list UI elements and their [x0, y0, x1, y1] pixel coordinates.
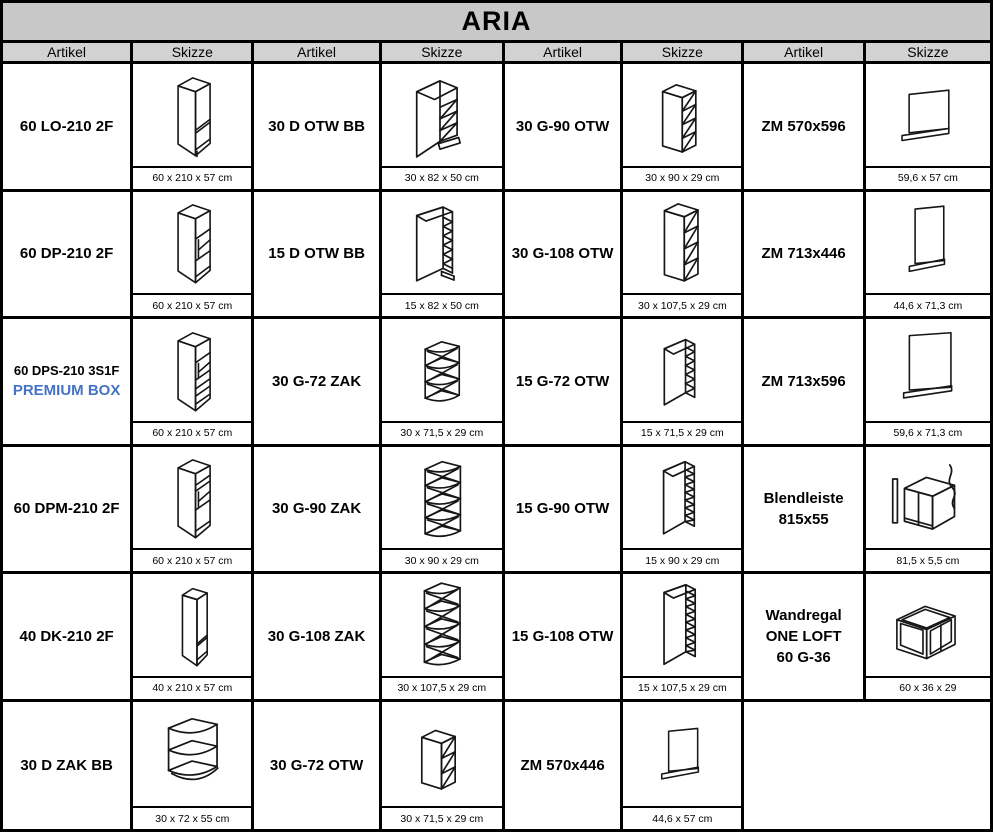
artikel-cell: 60 DP-210 2F — [3, 192, 133, 320]
dimensions-label: 30 x 90 x 29 cm — [382, 548, 502, 571]
artikel-cell: 30 G-108 ZAK — [254, 574, 381, 702]
skizze-cell: 15 x 90 x 29 cm — [623, 447, 744, 575]
column-header-artikel: Artikel — [3, 43, 133, 64]
artikel-cell: 30 G-90 ZAK — [254, 447, 381, 575]
dimensions-label: 44,6 x 71,3 cm — [866, 293, 990, 316]
dimensions-label: 30 x 107,5 x 29 cm — [623, 293, 741, 316]
catalog-page: ARIA Artikel Skizze Artikel Skizze Artik… — [0, 0, 993, 832]
corner-open-shelf-5-tall-icon — [382, 574, 502, 676]
dimensions-label: 60 x 36 x 29 — [866, 676, 990, 699]
premium-box-label: PREMIUM BOX — [13, 380, 121, 401]
artikel-cell: 15 G-72 OTW — [505, 319, 623, 447]
article-code: 30 G-108 OTW — [512, 243, 614, 264]
dimensions-label: 30 x 72 x 55 cm — [133, 806, 251, 829]
dimensions-label: 30 x 71,5 x 29 cm — [382, 421, 502, 444]
artikel-cell: 15 D OTW BB — [254, 192, 381, 320]
catalog-title: ARIA — [3, 3, 990, 43]
skizze-cell: 60 x 210 x 57 cm — [133, 447, 254, 575]
article-code: ZM 713x596 — [762, 371, 846, 392]
artikel-cell: WandregalONE LOFT60 G-36 — [744, 574, 865, 702]
wall-open-shelf-3-icon — [382, 702, 502, 807]
skizze-cell: 60 x 210 x 57 cm — [133, 319, 254, 447]
corner-open-shelf-5-icon — [382, 447, 502, 549]
artikel-cell: 30 D OTW BB — [254, 64, 381, 192]
article-code: 60 DPS-210 3S1F — [14, 362, 120, 380]
article-code: 30 D OTW BB — [268, 116, 365, 137]
article-code: 30 G-72 ZAK — [272, 371, 361, 392]
dimensions-label: 30 x 82 x 50 cm — [382, 166, 502, 189]
skizze-cell: 30 x 107,5 x 29 cm — [382, 574, 505, 702]
column-header-artikel: Artikel — [254, 43, 381, 64]
article-code: 815x55 — [779, 509, 829, 530]
dimensions-label: 30 x 90 x 29 cm — [623, 166, 741, 189]
skizze-cell: 15 x 71,5 x 29 cm — [623, 319, 744, 447]
skizze-cell: 60 x 36 x 29 — [866, 574, 990, 702]
wall-open-shelf-4-icon — [623, 64, 741, 166]
corner-base-open-shelf-icon — [133, 702, 251, 807]
end-panel-square-icon — [866, 64, 990, 166]
tall-oven-housing-drawers-icon — [133, 319, 251, 421]
column-header-skizze: Skizze — [133, 43, 254, 64]
article-code: 60 LO-210 2F — [20, 116, 113, 137]
skizze-cell: 44,6 x 57 cm — [623, 702, 744, 830]
artikel-cell: 15 G-90 OTW — [505, 447, 623, 575]
column-header-skizze: Skizze — [866, 43, 990, 64]
article-code: Wandregal — [766, 605, 842, 626]
dimensions-label: 60 x 210 x 57 cm — [133, 421, 251, 444]
article-code: ZM 713x446 — [762, 243, 846, 264]
end-panel-small-icon — [623, 702, 741, 807]
tall-cabinet-2f-icon — [133, 64, 251, 166]
dimensions-label: 15 x 71,5 x 29 cm — [623, 421, 741, 444]
article-code: 40 DK-210 2F — [19, 626, 113, 647]
column-header-artikel: Artikel — [744, 43, 865, 64]
base-cargo-open-shelf-narrow-icon — [382, 192, 502, 294]
artikel-cell: 30 D ZAK BB — [3, 702, 133, 830]
skizze-cell: 60 x 210 x 57 cm — [133, 192, 254, 320]
artikel-cell: 60 DPM-210 2F — [3, 447, 133, 575]
artikel-cell: Blendleiste815x55 — [744, 447, 865, 575]
artikel-cell: 60 DPS-210 3S1FPREMIUM BOX — [3, 319, 133, 447]
skizze-cell: 59,6 x 57 cm — [866, 64, 990, 192]
skizze-cell: 59,6 x 71,3 cm — [866, 319, 990, 447]
open-frame-wall-shelf-icon — [866, 574, 990, 676]
artikel-cell: ZM 713x446 — [744, 192, 865, 320]
article-code: 15 D OTW BB — [268, 243, 365, 264]
base-cargo-open-shelf-icon — [382, 64, 502, 166]
artikel-cell: ZM 570x446 — [505, 702, 623, 830]
dimensions-label: 30 x 71,5 x 29 cm — [382, 806, 502, 829]
dimensions-label: 15 x 82 x 50 cm — [382, 293, 502, 316]
article-code: 30 G-90 OTW — [516, 116, 609, 137]
dimensions-label: 59,6 x 57 cm — [866, 166, 990, 189]
artikel-cell: 30 G-90 OTW — [505, 64, 623, 192]
column-header-artikel: Artikel — [505, 43, 623, 64]
article-code: 15 G-72 OTW — [516, 371, 609, 392]
column-header-skizze: Skizze — [623, 43, 744, 64]
article-code: 30 G-90 ZAK — [272, 498, 361, 519]
dimensions-label: 59,6 x 71,3 cm — [866, 421, 990, 444]
artikel-cell: 30 G-72 OTW — [254, 702, 381, 830]
dimensions-label: 44,6 x 57 cm — [623, 806, 741, 829]
article-code: ONE LOFT — [766, 626, 842, 647]
dimensions-label: 60 x 210 x 57 cm — [133, 166, 251, 189]
skizze-cell: 30 x 107,5 x 29 cm — [623, 192, 744, 320]
tall-cabinet-narrow-icon — [133, 574, 251, 676]
dimensions-label: 60 x 210 x 57 cm — [133, 548, 251, 571]
dimensions-label: 30 x 107,5 x 29 cm — [382, 676, 502, 699]
skizze-cell: 60 x 210 x 57 cm — [133, 64, 254, 192]
end-panel-tall-wide-icon — [866, 319, 990, 421]
dimensions-label: 81,5 x 5,5 cm — [866, 548, 990, 571]
skizze-cell: 30 x 90 x 29 cm — [382, 447, 505, 575]
artikel-cell: 60 LO-210 2F — [3, 64, 133, 192]
article-code: 60 DP-210 2F — [20, 243, 113, 264]
skizze-cell: 81,5 x 5,5 cm — [866, 447, 990, 575]
wall-open-shelf-narrow-short-icon — [623, 319, 741, 421]
tall-oven-housing-icon — [133, 192, 251, 294]
catalog-table: ARIA Artikel Skizze Artikel Skizze Artik… — [3, 3, 990, 829]
article-code: 15 G-90 OTW — [516, 498, 609, 519]
skizze-cell: 15 x 107,5 x 29 cm — [623, 574, 744, 702]
dimensions-label: 60 x 210 x 57 cm — [133, 293, 251, 316]
artikel-cell: 40 DK-210 2F — [3, 574, 133, 702]
skizze-cell: 30 x 82 x 50 cm — [382, 64, 505, 192]
artikel-cell: 15 G-108 OTW — [505, 574, 623, 702]
skizze-cell: 40 x 210 x 57 cm — [133, 574, 254, 702]
article-code: 60 G-36 — [777, 647, 831, 668]
skizze-cell: 30 x 71,5 x 29 cm — [382, 702, 505, 830]
article-code: Blendleiste — [764, 488, 844, 509]
tall-microwave-housing-icon — [133, 447, 251, 549]
artikel-cell: 30 G-72 ZAK — [254, 319, 381, 447]
artikel-cell: ZM 713x596 — [744, 319, 865, 447]
article-code: 30 G-108 ZAK — [268, 626, 366, 647]
article-code: 30 G-72 OTW — [270, 755, 363, 776]
skizze-cell: 30 x 71,5 x 29 cm — [382, 319, 505, 447]
skizze-cell: 30 x 72 x 55 cm — [133, 702, 254, 830]
empty-cell — [744, 702, 990, 830]
dimensions-label: 15 x 107,5 x 29 cm — [623, 676, 741, 699]
article-code: 15 G-108 OTW — [512, 626, 614, 647]
column-header-skizze: Skizze — [382, 43, 505, 64]
wall-open-shelf-narrow-tall-icon — [623, 574, 741, 676]
article-code: ZM 570x446 — [520, 755, 604, 776]
article-code: 60 DPM-210 2F — [14, 498, 120, 519]
corner-open-shelf-4-icon — [382, 319, 502, 421]
skizze-cell: 15 x 82 x 50 cm — [382, 192, 505, 320]
filler-strip-cabinet-icon — [866, 447, 990, 549]
artikel-cell: ZM 570x596 — [744, 64, 865, 192]
article-code: ZM 570x596 — [762, 116, 846, 137]
dimensions-label: 15 x 90 x 29 cm — [623, 548, 741, 571]
wall-open-shelf-4-tall-icon — [623, 192, 741, 294]
end-panel-tall-narrow-icon — [866, 192, 990, 294]
skizze-cell: 30 x 90 x 29 cm — [623, 64, 744, 192]
artikel-cell: 30 G-108 OTW — [505, 192, 623, 320]
skizze-cell: 44,6 x 71,3 cm — [866, 192, 990, 320]
wall-open-shelf-narrow-mid-icon — [623, 447, 741, 549]
article-code: 30 D ZAK BB — [20, 755, 113, 776]
dimensions-label: 40 x 210 x 57 cm — [133, 676, 251, 699]
